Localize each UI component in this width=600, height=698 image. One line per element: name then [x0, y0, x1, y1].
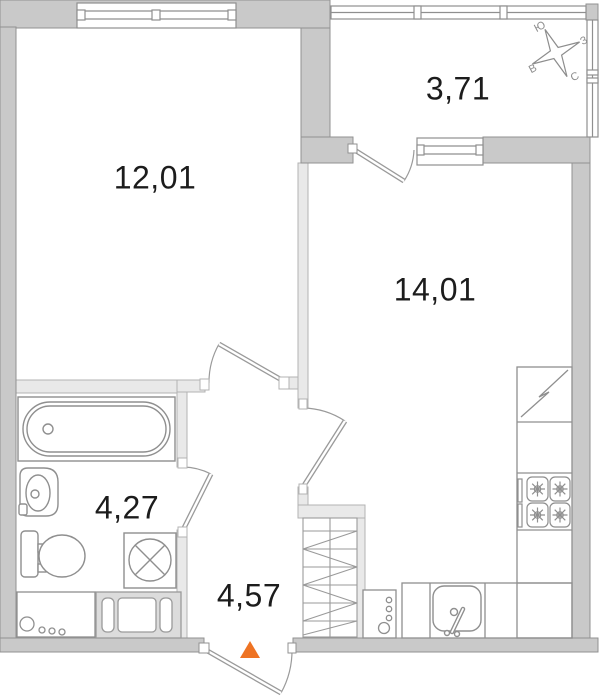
toilet: [21, 531, 85, 577]
room-label-hallway: 4,57: [217, 578, 281, 615]
bedroom-window: [77, 3, 236, 28]
balcony-door: [348, 144, 414, 181]
floor-plan-drawing: [0, 0, 600, 698]
kitchen-counter: [402, 367, 572, 638]
bathroom-cabinet-knobs: [17, 592, 95, 637]
washbasin: [19, 468, 58, 516]
bathroom-door: [178, 458, 211, 537]
wardrobe: [303, 518, 357, 637]
washing-machine: [124, 533, 176, 588]
bathtub: [18, 397, 175, 461]
room-label-bedroom: 12,01: [114, 160, 197, 197]
room-label-bathroom: 4,27: [95, 490, 159, 527]
compass-rose-icon: [532, 29, 579, 76]
kitchen-appliance-panel: [363, 590, 396, 638]
kitchen-sink: [433, 586, 481, 637]
room-label-balcony: 3,71: [426, 71, 490, 108]
floor-plan: 12,01 3,71 14,01 4,27 4,57 Ю З В С: [0, 0, 600, 698]
stove: [518, 477, 570, 527]
room-label-living-kitchen: 14,01: [394, 272, 477, 309]
refrigerator: [521, 370, 568, 417]
living-room-door: [299, 399, 345, 494]
bathroom-storage-unit: [96, 592, 181, 638]
entrance-marker-icon: [240, 641, 260, 658]
burner-icons: [530, 482, 568, 523]
bedroom-door: [200, 344, 289, 390]
balcony-partition-window: [417, 138, 483, 165]
